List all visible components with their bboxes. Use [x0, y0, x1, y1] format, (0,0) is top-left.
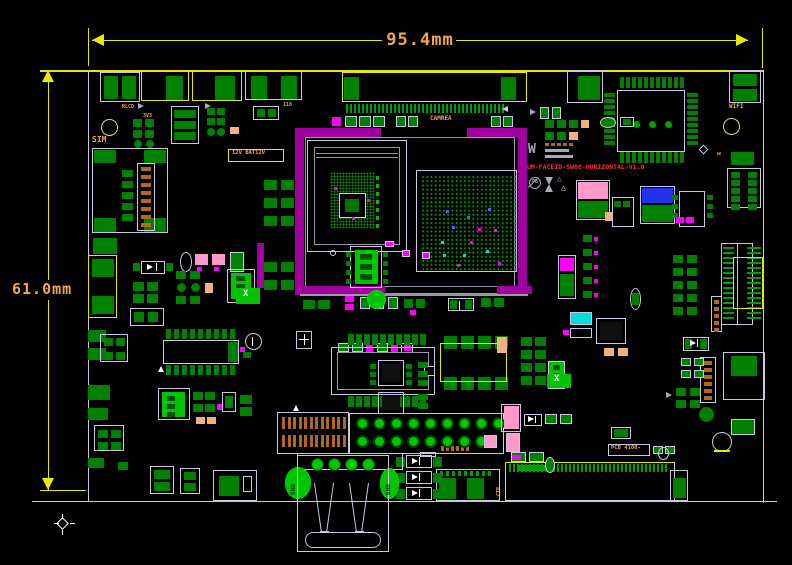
pcb-pad-row — [626, 152, 630, 163]
pcb-line — [762, 28, 763, 68]
pcb-pad-row — [486, 104, 488, 113]
pcb-shape — [416, 299, 425, 308]
pcb-pad-row — [141, 191, 151, 195]
pcb-pad-row — [310, 435, 313, 447]
pcb-line — [40, 490, 86, 491]
pcb-pad-row — [714, 307, 719, 311]
pcb-pad-row — [644, 152, 648, 163]
pcb-pad-row — [707, 204, 713, 209]
pcb-line — [459, 301, 460, 310]
pcb-shape — [174, 110, 196, 118]
pcb-pad-row — [604, 141, 615, 145]
pcb-pad-row — [583, 235, 592, 242]
pcb-pad-row — [337, 417, 340, 429]
pcb-shape — [642, 205, 673, 222]
pcb-shape — [563, 330, 569, 335]
pcb-shape — [147, 294, 158, 303]
pcb-shape — [137, 163, 155, 231]
pcb-pad-row — [346, 279, 351, 284]
pcb-pad-row — [326, 435, 329, 447]
pcb-shape — [303, 300, 315, 309]
pcb-shape — [345, 296, 354, 302]
pcb-pad-row — [673, 294, 683, 302]
arrow-or-mark-icon — [528, 416, 534, 422]
pcb-pad-row — [214, 365, 219, 375]
pcb-pad-row — [488, 471, 491, 476]
pcb-shape — [408, 116, 418, 127]
pcb-pad-row — [731, 172, 740, 178]
pcb-pad-row — [402, 104, 404, 113]
pcb-shape — [243, 476, 252, 492]
pcb-pad-row — [346, 104, 348, 113]
pcb-pad-row — [597, 464, 599, 472]
pcb-line — [355, 531, 364, 532]
pcb-pad-row — [141, 199, 151, 203]
pcb-pad-row — [747, 252, 761, 254]
pcb-shape — [367, 199, 370, 202]
pcb-pad-row — [167, 412, 175, 417]
pcb-pad-row — [605, 464, 607, 472]
arrow-or-mark-icon — [147, 264, 153, 270]
pcb-pad-row — [656, 152, 660, 163]
pcb-shape — [478, 228, 481, 231]
pcb-pad-row — [356, 396, 362, 407]
pcb-oval-pad — [658, 447, 669, 460]
pcb-pad-row — [104, 352, 113, 360]
pcb-shape — [215, 76, 235, 100]
pcb-shape — [512, 455, 521, 460]
pcb-shape — [581, 120, 589, 128]
pcb-pad-row — [383, 252, 388, 257]
pcb-pad-row — [513, 464, 515, 472]
pcb-shape — [205, 283, 213, 293]
pcb-shape — [133, 119, 142, 127]
pcb-pad-row — [569, 464, 571, 472]
pcb-pad-row — [374, 104, 376, 113]
pcb-shape — [359, 116, 371, 127]
pcb-pad-row — [637, 464, 639, 472]
pcb-shape — [184, 483, 196, 491]
pcb-pad-row — [687, 141, 698, 145]
pcb-round-pad — [665, 121, 672, 128]
arrow-or-mark-icon — [690, 340, 696, 346]
pcb-pad-row — [673, 255, 683, 263]
pcb-shape — [694, 370, 704, 378]
pcb-pad-row — [673, 268, 683, 276]
arrow-or-mark-icon — [412, 490, 418, 496]
pcb-shape — [420, 452, 436, 457]
pcb-pad-row — [672, 204, 678, 209]
pcb-pad-row — [264, 280, 277, 290]
pcb-pad-row — [343, 435, 346, 447]
pcb-line — [62, 514, 63, 519]
pcb-round-pad — [723, 118, 740, 135]
pcb-pad-row — [230, 329, 235, 339]
pcb-shape — [498, 262, 501, 265]
pcb-shape — [251, 76, 267, 99]
pcb-pad-row — [348, 396, 354, 407]
pcb-pad-row — [593, 464, 595, 472]
silkscreen-text: SIM — [92, 136, 106, 144]
pcb-line — [419, 457, 420, 465]
pcb-shape — [190, 296, 200, 304]
pcb-shape — [318, 300, 330, 309]
pcb-shape — [88, 458, 104, 468]
pcb-pad-row — [282, 417, 285, 429]
pcb-pad-row — [418, 394, 428, 400]
pcb-pad-row — [348, 334, 354, 345]
pcb-pad-row — [704, 389, 712, 393]
pcb-shape — [92, 259, 114, 277]
pcb-shape — [144, 150, 166, 163]
pcb-pad-row — [346, 252, 351, 257]
pcb-pad-row — [620, 77, 624, 88]
pcb-shape — [122, 76, 136, 99]
pcb-line — [505, 462, 675, 463]
arrow-or-mark-icon — [412, 458, 418, 464]
pcb-pad-row — [166, 329, 171, 339]
pcb-pad-row — [714, 321, 719, 325]
pcb-pad-row — [350, 104, 352, 113]
pcb-shape — [141, 261, 165, 274]
pcb-pad-row — [569, 143, 573, 146]
pcb-pad-row — [406, 364, 412, 369]
pcb-pad-row — [376, 192, 379, 196]
pcb-pad-row — [383, 270, 388, 275]
silkscreen-text: GND — [291, 484, 297, 495]
pcb-shape — [506, 433, 520, 452]
pcb-pad-row — [360, 264, 372, 270]
pcb-pad-row — [638, 152, 642, 163]
dimension-height-label: 61.0mm — [12, 280, 72, 298]
pcb-pad-row — [376, 176, 379, 180]
pcb-pad-row — [476, 471, 479, 476]
pcb-pad-row — [707, 195, 713, 200]
pcb-pad-row — [577, 464, 579, 472]
pcb-pin-row — [356, 417, 369, 430]
pcb-shape — [467, 128, 527, 137]
pcb-shape — [623, 119, 631, 125]
pcb-pad-row — [565, 464, 567, 472]
pcb-pin-row — [458, 417, 471, 430]
pcb-pin-row — [441, 417, 454, 430]
pcb-pad-row — [723, 252, 734, 254]
silkscreen-text: 118 — [283, 103, 292, 108]
pcb-shape — [94, 218, 116, 232]
pcb-pad-row — [674, 77, 678, 88]
pcb-shape — [518, 128, 527, 295]
pcb-pad-row — [281, 216, 294, 226]
pcb-shape — [733, 257, 763, 309]
pcb-round-pad — [330, 250, 336, 256]
pcb-pad-row — [206, 365, 211, 375]
pcb-shape — [145, 119, 154, 127]
pcb-pin-row — [424, 435, 437, 448]
pcb-shape — [545, 155, 573, 158]
pcb-shape — [154, 470, 170, 479]
pcb-pad-row — [478, 104, 480, 113]
pcb-line — [32, 501, 777, 502]
pcb-pad-row — [111, 442, 121, 450]
pcb-pad-row — [122, 170, 133, 177]
pcb-pin-row — [458, 435, 471, 448]
pcb-round-pad — [177, 283, 186, 292]
silkscreen-text: △ — [557, 175, 562, 183]
pcb-pad-row — [182, 329, 187, 339]
pcb-shape — [166, 263, 173, 271]
pcb-pad-row — [346, 270, 351, 275]
silkscreen-text: UM-FACEID-SW08-HORIZONTAL-V1.0 — [527, 164, 644, 171]
pcb-pad-row — [358, 104, 360, 113]
pcb-pad-row — [714, 300, 719, 304]
pcb-pad-row — [354, 104, 356, 113]
pcb-pad-row — [633, 464, 635, 472]
pcb-round-pad — [699, 407, 714, 422]
pcb-shape — [731, 356, 757, 376]
pcb-pad-row — [621, 464, 623, 472]
pcb-pad-row — [383, 261, 388, 266]
pcb-shape — [396, 116, 406, 127]
pcb-shape — [228, 342, 238, 362]
pcb-pad-row — [406, 372, 412, 377]
pcb-pad-row — [731, 204, 740, 210]
pcb-pad-row — [414, 104, 416, 113]
pcb-shape — [382, 364, 400, 382]
pcb-pad-row — [494, 104, 496, 113]
pcb-pad-row — [406, 380, 412, 385]
pcb-line — [697, 339, 698, 347]
pcb-pad-row — [604, 93, 615, 97]
pcb-pin-row — [356, 435, 369, 448]
pcb-shape — [154, 482, 170, 491]
pcb-pad-row — [662, 77, 666, 88]
pcb-pad-row — [264, 216, 277, 226]
pcb-shape — [557, 120, 566, 128]
pcb-round-pad — [146, 140, 154, 148]
pcb-pad-row — [704, 361, 712, 365]
pcb-pad-row — [346, 261, 351, 266]
pcb-pad-row — [167, 396, 175, 401]
pcb-shape — [578, 182, 608, 199]
pcb-pad-row — [222, 365, 227, 375]
arrow-or-mark-icon — [666, 392, 672, 398]
pcb-shape — [205, 392, 215, 400]
pcb-pad-row — [650, 77, 654, 88]
pcb-pad-row — [704, 368, 712, 372]
pcb-pad-row — [406, 104, 408, 113]
pcb-pad-row — [236, 276, 245, 281]
pcb-pad-row — [116, 352, 125, 360]
pcb-pad-row — [561, 464, 563, 472]
pcb-pad-row — [482, 104, 484, 113]
pcb-canvas[interactable]: SIMRLCD3V311812V BAT12VCAMREAWIFIRWUM-FA… — [0, 0, 792, 565]
arrow-or-mark-icon — [412, 474, 418, 480]
pcb-shape — [207, 108, 215, 115]
pcb-pad-row — [573, 464, 575, 472]
pcb-shape — [402, 250, 410, 257]
pcb-pin-row — [390, 435, 403, 448]
pcb-pad-row — [714, 328, 719, 332]
arrow-or-mark-icon — [92, 34, 104, 46]
pcb-pad-row — [535, 376, 546, 385]
pcb-pad-row — [687, 255, 697, 263]
pcb-pad-row — [687, 105, 698, 109]
pcb-line — [70, 523, 75, 524]
pcb-pad-row — [264, 262, 277, 272]
pcb-shape — [190, 271, 200, 279]
pcb-shape — [733, 89, 757, 101]
pcb-pad-row — [388, 334, 394, 345]
pcb-pin-row — [373, 435, 386, 448]
pcb-pad-row — [122, 192, 133, 199]
pcb-pad-row — [214, 329, 219, 339]
pcb-line — [48, 75, 49, 280]
pcb-round-pad — [101, 119, 118, 136]
pcb-shape — [433, 457, 442, 467]
pcb-shape — [342, 72, 527, 102]
pcb-pad-row — [230, 365, 235, 375]
pcb-pad-row — [641, 464, 643, 472]
pcb-shape — [281, 76, 297, 99]
pcb-oval-pad — [180, 252, 192, 272]
pcb-shape — [230, 127, 239, 134]
pcb-shape — [681, 370, 691, 378]
pcb-pad-row — [604, 111, 615, 115]
pcb-pad-row — [748, 196, 757, 202]
pcb-pad-row — [498, 104, 500, 113]
pcb-shape — [243, 352, 251, 358]
pcb-pad-row — [707, 213, 713, 218]
pcb-shape — [545, 414, 557, 424]
pcb-shape — [605, 212, 612, 221]
pcb-pad-row — [304, 417, 307, 429]
pcb-pad-row — [585, 464, 587, 472]
pcb-pad-row — [687, 111, 698, 115]
pcb-pad-row — [601, 464, 603, 472]
pcb-round-pad — [633, 121, 640, 128]
silkscreen-text: △ — [561, 184, 566, 192]
pcb-pad-row — [649, 464, 651, 472]
pcb-shape — [470, 241, 473, 244]
pcb-shape — [570, 328, 592, 338]
pcb-pad-row — [454, 104, 456, 113]
pcb-pad-row — [104, 338, 113, 346]
pcb-pad-row — [386, 104, 388, 113]
arrow-or-mark-icon — [42, 70, 54, 82]
pcb-shape — [497, 286, 532, 294]
pcb-shape — [404, 299, 413, 308]
pcb-pad-row — [396, 334, 402, 345]
pcb-shape — [88, 408, 108, 420]
pcb-shape — [600, 322, 622, 340]
pcb-shape — [494, 229, 497, 232]
pcb-line — [714, 450, 730, 452]
arrow-or-mark-icon — [502, 106, 508, 112]
pcb-line — [320, 531, 329, 532]
pcb-pad-row — [687, 117, 698, 121]
pcb-shape — [207, 417, 216, 424]
pcb-pad-row — [370, 364, 376, 369]
pcb-line — [316, 157, 398, 158]
pcb-pad-row — [747, 247, 761, 249]
pcb-shape — [345, 304, 354, 310]
pcb-pad-row — [687, 99, 698, 103]
pcb-shape — [467, 478, 484, 499]
pcb-shape — [560, 274, 574, 296]
pcb-shape — [92, 296, 114, 314]
pcb-round-pad — [207, 128, 215, 136]
pcb-pad-row — [380, 334, 386, 345]
pcb-line — [92, 40, 382, 41]
pcb-pad-row — [412, 334, 418, 345]
pcb-pad-row — [281, 262, 294, 272]
pcb-pad-row — [404, 334, 410, 345]
pcb-pad-row — [617, 464, 619, 472]
pcb-pad-row — [594, 279, 598, 283]
pcb-pad-row — [583, 249, 592, 256]
pcb-pad-row — [690, 400, 700, 408]
pcb-pad-row — [321, 435, 324, 447]
pcb-round-pad — [649, 121, 656, 128]
pcb-pad-row — [446, 104, 448, 113]
pcb-pad-row — [304, 435, 307, 447]
pcb-pad-row — [288, 417, 291, 429]
pcb-shape — [503, 116, 513, 127]
pcb-pad-row — [594, 293, 598, 297]
pcb-shape — [382, 396, 400, 410]
pcb-pad-row — [166, 365, 171, 375]
pcb-pad-row — [482, 471, 485, 476]
pcb-shape — [219, 476, 239, 496]
pcb-line — [88, 28, 89, 66]
pcb-pad-row — [450, 104, 452, 113]
pcb-shape — [166, 76, 183, 100]
pcb-shape — [673, 478, 686, 498]
pcb-pad-row — [174, 329, 179, 339]
pcb-pad-row — [198, 365, 203, 375]
pcb-pin-row — [407, 417, 420, 430]
pcb-shape — [501, 77, 516, 100]
pcb-pad-row — [293, 417, 296, 429]
silkscreen-text: CTP — [497, 487, 502, 496]
pcb-shape — [422, 252, 430, 259]
pcb-shape — [441, 241, 444, 244]
pcb-pad-row — [747, 317, 761, 319]
pcb-pad-row — [614, 201, 621, 207]
pcb-shape — [176, 271, 186, 279]
pcb-pad-row — [632, 152, 636, 163]
pcb-pad-row — [362, 104, 364, 113]
pcb-shape — [569, 132, 578, 140]
pcb-shape — [433, 473, 442, 483]
pcb-shape — [488, 208, 491, 211]
pcb-pad-row — [748, 172, 757, 178]
pcb-shape — [618, 348, 628, 356]
pcb-shape — [457, 264, 460, 267]
pcb-line — [62, 530, 63, 535]
pcb-round-pad — [134, 140, 142, 148]
pcb-pad-row — [604, 105, 615, 109]
pcb-shape — [147, 282, 158, 291]
pcb-shape — [452, 226, 455, 229]
pcb-pad-row — [521, 376, 532, 385]
pcb-pad-row — [551, 143, 555, 146]
pcb-pad-row — [452, 471, 455, 476]
pcb-pad-row — [264, 198, 277, 208]
arrow-or-mark-icon — [138, 103, 144, 109]
pcb-pad-row — [623, 201, 630, 207]
pcb-pad-row — [206, 329, 211, 339]
